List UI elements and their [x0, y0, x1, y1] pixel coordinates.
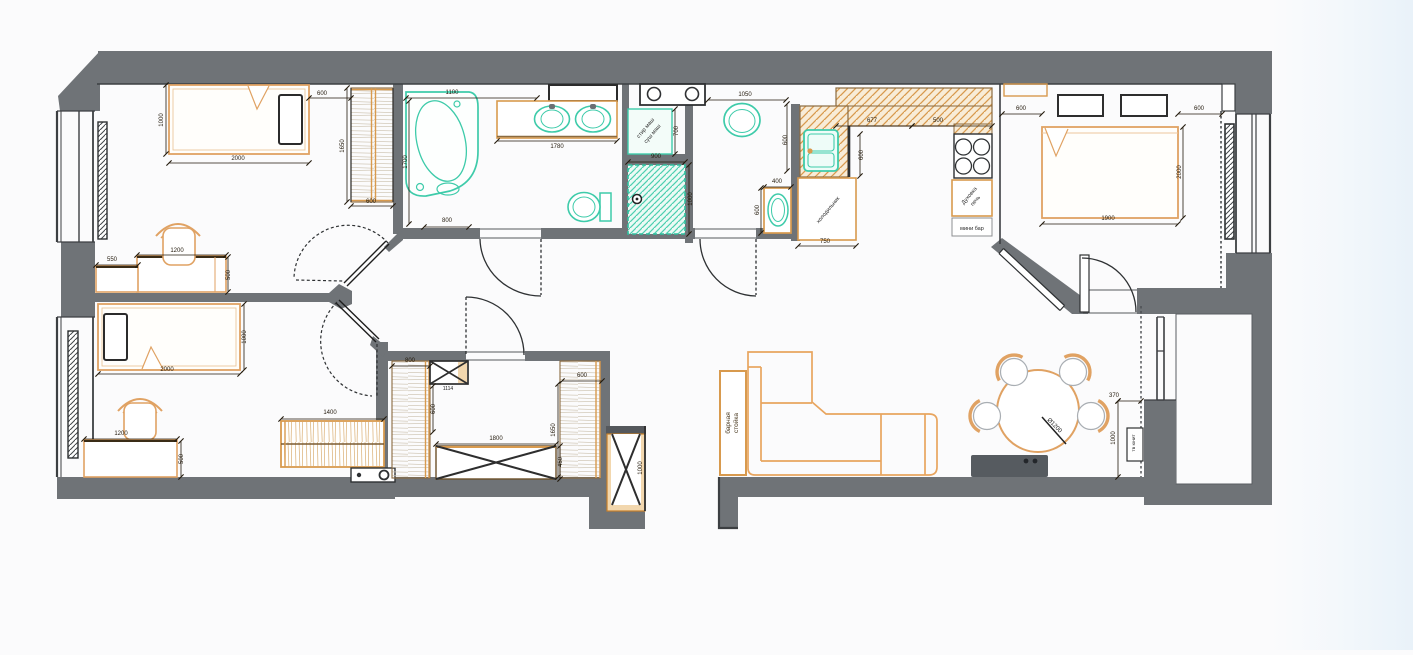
svg-text:1000: 1000: [688, 192, 694, 206]
svg-text:600: 600: [755, 204, 761, 215]
svg-text:600: 600: [577, 373, 588, 379]
svg-text:2000: 2000: [1177, 165, 1183, 179]
svg-text:900: 900: [651, 154, 662, 160]
svg-text:1050: 1050: [738, 92, 752, 98]
svg-text:500: 500: [933, 118, 944, 124]
svg-text:600: 600: [859, 149, 865, 160]
svg-text:500: 500: [179, 453, 185, 464]
svg-text:1000: 1000: [1111, 431, 1117, 445]
svg-text:400: 400: [772, 179, 783, 185]
svg-text:500: 500: [226, 269, 232, 280]
svg-text:600: 600: [1016, 106, 1027, 112]
svg-text:1000: 1000: [638, 461, 644, 475]
svg-text:мини бар: мини бар: [960, 226, 984, 232]
svg-text:550: 550: [107, 257, 118, 263]
svg-text:600: 600: [431, 403, 437, 414]
svg-text:450: 450: [558, 456, 564, 467]
svg-text:1100: 1100: [446, 90, 460, 96]
svg-text:1200: 1200: [114, 431, 128, 437]
svg-text:тв юнит: тв юнит: [1132, 434, 1137, 452]
svg-text:1650: 1650: [551, 423, 557, 437]
svg-text:1900: 1900: [1101, 216, 1115, 222]
svg-text:1700: 1700: [403, 155, 409, 169]
svg-text:800: 800: [442, 218, 453, 224]
svg-text:2000: 2000: [231, 156, 245, 162]
svg-text:барная: барная: [724, 412, 732, 434]
svg-text:750: 750: [820, 239, 831, 245]
svg-text:600: 600: [783, 134, 789, 145]
svg-text:1000: 1000: [242, 330, 248, 344]
svg-text:1800: 1800: [489, 436, 503, 442]
svg-text:600: 600: [366, 199, 377, 205]
svg-text:2000: 2000: [160, 367, 174, 373]
svg-text:1400: 1400: [323, 410, 337, 416]
svg-text:1000: 1000: [159, 113, 165, 127]
svg-text:600: 600: [1194, 106, 1205, 112]
svg-text:600: 600: [317, 91, 328, 97]
svg-text:1200: 1200: [170, 248, 184, 254]
svg-text:1650: 1650: [340, 139, 346, 153]
svg-text:700: 700: [674, 125, 680, 136]
svg-text:370: 370: [1109, 393, 1120, 399]
svg-text:1780: 1780: [550, 144, 564, 150]
svg-text:800: 800: [405, 358, 416, 364]
svg-text:677: 677: [867, 118, 878, 124]
svg-text:1114: 1114: [443, 386, 454, 392]
svg-text:стойка: стойка: [732, 413, 740, 433]
